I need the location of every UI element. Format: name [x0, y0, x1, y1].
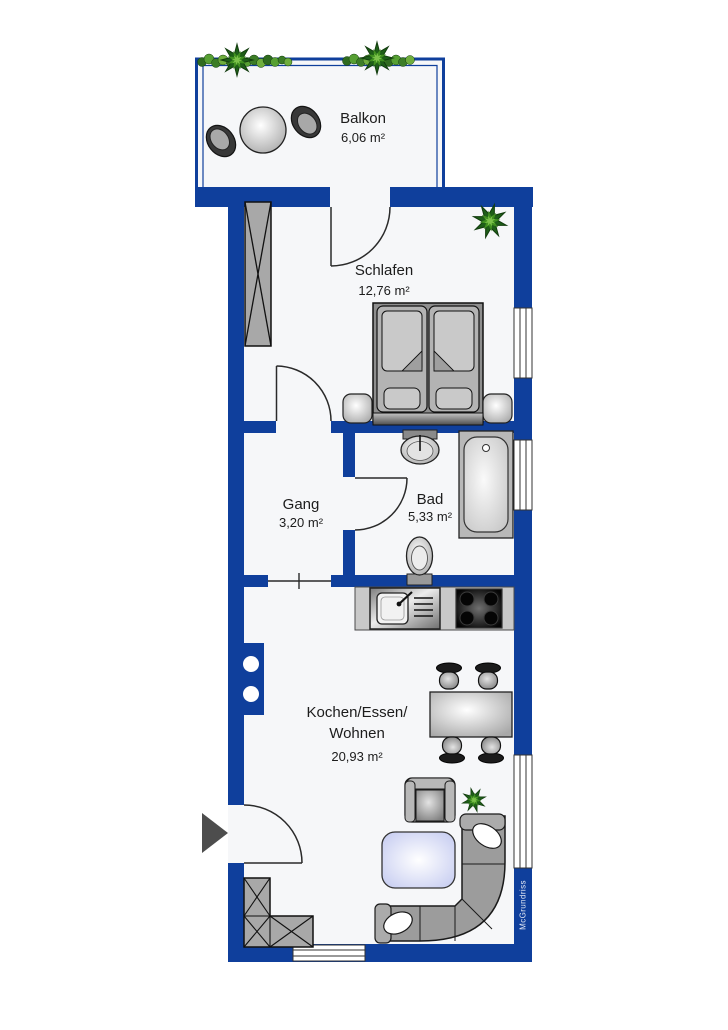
pipe-icon	[243, 656, 259, 672]
armchair	[405, 778, 455, 822]
kochen-label-line2: Wohnen	[329, 726, 385, 743]
entrance-opening	[228, 805, 244, 863]
entrance-arrow-icon	[202, 813, 228, 853]
kochen-area: 20,93 m²	[331, 750, 382, 764]
wall-segment	[228, 863, 244, 944]
nightstand	[483, 394, 512, 423]
kochen-label-line1: Kochen/Essen/	[307, 705, 408, 722]
dining-chair	[479, 737, 504, 763]
bed-footboard	[373, 413, 483, 425]
bad-label: Bad	[417, 492, 444, 509]
toilet	[407, 537, 433, 585]
dining-table	[430, 692, 512, 737]
wall-segment	[343, 421, 355, 477]
watermark-label: McGrundriss	[519, 880, 528, 930]
floorplan: Balkon 6,06 m² Schlafen 12,76 m² Gang 3,…	[0, 0, 728, 1030]
kitchen-counter	[355, 587, 514, 630]
nightstand	[343, 394, 372, 423]
wall-segment	[244, 575, 268, 587]
stove	[456, 589, 502, 628]
gang-label: Gang	[283, 497, 320, 514]
duct-shaft	[240, 643, 264, 715]
potted-plant	[221, 44, 253, 76]
kitchen-sink	[370, 588, 440, 629]
floorplan-canvas	[0, 0, 728, 1030]
gang-area: 3,20 m²	[279, 516, 323, 530]
schlafen-label: Schlafen	[355, 263, 413, 280]
bathroom-sink	[401, 430, 439, 464]
balkon-label: Balkon	[340, 111, 386, 128]
dining-chair	[437, 663, 462, 689]
balcony-door-opening	[330, 187, 390, 207]
living-window	[514, 755, 532, 868]
dining-chair	[476, 663, 501, 689]
wall-segment	[244, 421, 276, 433]
schlafen-area: 12,76 m²	[358, 284, 409, 298]
bed-pillow	[436, 388, 472, 409]
wall-segment	[390, 187, 533, 207]
pipe-icon	[243, 686, 259, 702]
coffee-table	[382, 832, 455, 888]
dining-chair	[440, 737, 465, 763]
bedroom-window	[514, 308, 532, 378]
balcony-table	[240, 107, 286, 153]
bathtub	[459, 431, 513, 538]
bad-area: 5,33 m²	[408, 510, 452, 524]
bedroom-wardrobe	[245, 202, 271, 346]
balkon-area: 6,06 m²	[341, 131, 385, 145]
bath-window	[514, 440, 532, 510]
potted-plant	[361, 42, 393, 74]
bed-pillow	[384, 388, 420, 409]
